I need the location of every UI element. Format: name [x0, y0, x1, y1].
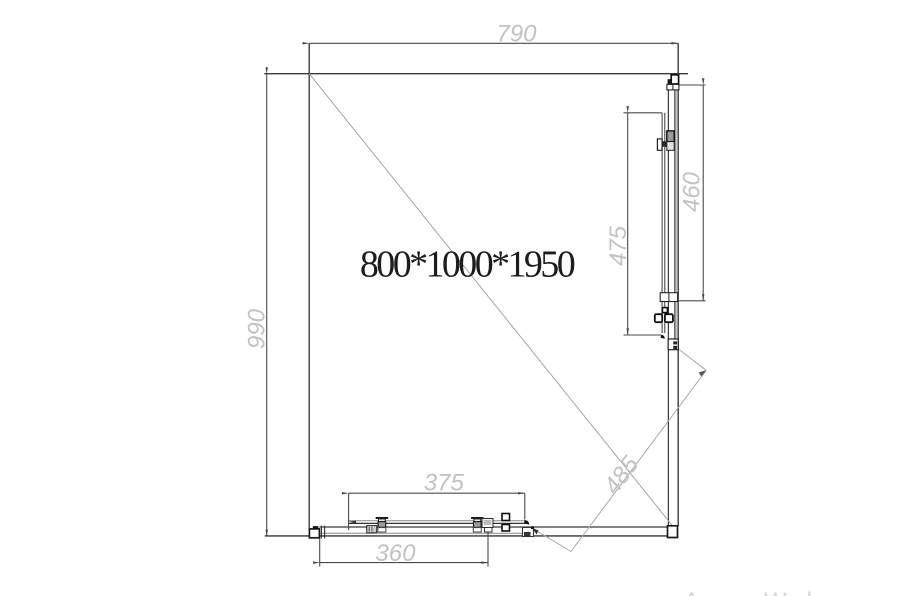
svg-text:375: 375 [424, 470, 465, 497]
svg-text:485: 485 [599, 451, 645, 500]
svg-text:990: 990 [244, 308, 271, 349]
svg-text:460: 460 [679, 171, 706, 212]
svg-text:360: 360 [375, 540, 416, 567]
svg-text:790: 790 [496, 20, 537, 47]
svg-text:Wxd: Wxd [764, 588, 812, 596]
svg-text:800*1000*1950: 800*1000*1950 [360, 244, 575, 286]
svg-text:475: 475 [605, 225, 632, 266]
svg-text:A: A [684, 588, 699, 596]
